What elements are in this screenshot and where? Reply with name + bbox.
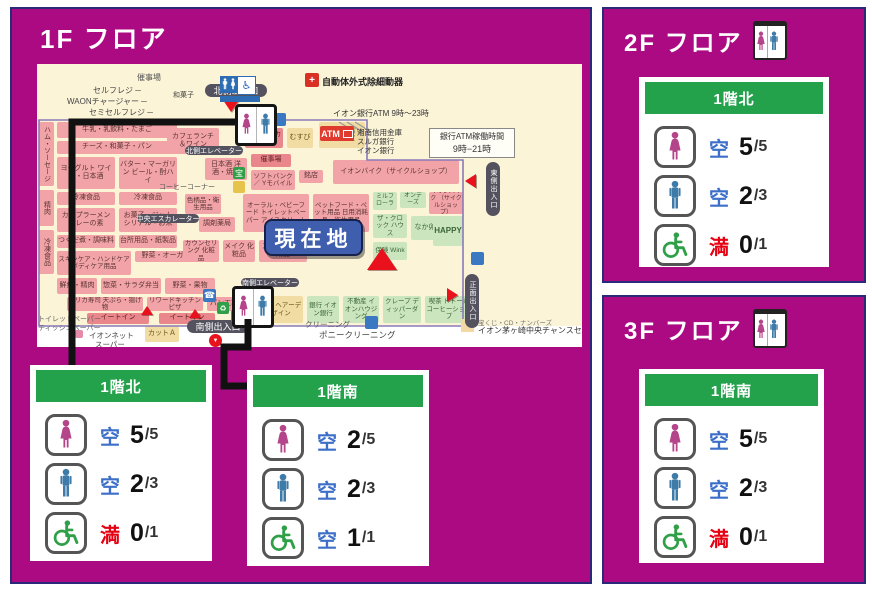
floor-1f-title-text: 1F フロア <box>40 19 168 56</box>
lottery-icon: 宝 <box>233 167 245 179</box>
vacancy-status: 空 <box>317 524 338 553</box>
map-store-block: つくだ煮・調味料 <box>57 235 115 248</box>
vacant-count: 2 <box>347 475 361 504</box>
vacancy-status: 満 <box>709 231 730 260</box>
total-count: /5 <box>754 430 767 448</box>
toilet-status-row: 空2/3 <box>654 466 824 510</box>
total-count: /5 <box>754 138 767 156</box>
male-icon <box>262 468 304 510</box>
female-icon <box>654 126 696 168</box>
map-label: セミセルフレジ ─ <box>89 107 153 118</box>
toilet-sign-icon <box>753 21 787 60</box>
map-store-block: カップラーメン カレーの素 <box>57 208 115 232</box>
total-count: /1 <box>145 524 158 542</box>
map-label: 和菓子 <box>173 90 194 100</box>
map-label: セルフレジ ─ <box>93 85 141 96</box>
toilet-sign-icon <box>753 309 787 348</box>
map-store-block: 精肉 <box>39 190 54 226</box>
floor-3f-title-text: 3F フロア <box>624 311 743 346</box>
toilet-status-row: 空1/1 <box>262 516 429 560</box>
map-store-block: チーズ・和菓子・パン <box>57 141 177 154</box>
map-store-block: カットＡ <box>145 326 179 342</box>
floor-3f-title: 3F フロア <box>624 309 787 348</box>
direction-marker-icon <box>447 288 458 302</box>
map-label: スーパー <box>95 339 125 347</box>
toilet-status-row: 空5/5 <box>654 417 824 461</box>
atm-hours-line2: 9時−21時 <box>453 142 491 155</box>
female-icon <box>654 418 696 460</box>
map-store-block: デリカ寿司 天ぷら・揚げ物 <box>67 297 143 311</box>
aed-icon: + <box>305 73 319 87</box>
kiosk-screen: 1F フロア ハム・ソーセージ精肉冷凍食品牛乳・乳飲料・たまごチーズ・和菓子・パ… <box>0 0 872 591</box>
map-store-block: 台所用品・紙製品 <box>119 235 177 248</box>
toilet-status-row: 空2/3 <box>262 467 429 511</box>
total-count: /3 <box>145 475 158 493</box>
male-icon <box>654 467 696 509</box>
card-header: 1階北 <box>645 82 823 114</box>
map-location-pill: 北側エレベーター <box>185 146 243 155</box>
vacancy-status: 空 <box>100 421 121 450</box>
male-icon <box>45 463 87 505</box>
wheelchair-icon <box>45 512 87 554</box>
floor-map: ハム・ソーセージ精肉冷凍食品牛乳・乳飲料・たまごチーズ・和菓子・パンヨーグルト … <box>37 64 582 347</box>
vacant-count: 2 <box>130 470 144 499</box>
card-rows: 空5/5空2/3満0/1 <box>30 402 212 555</box>
male-icon <box>654 175 696 217</box>
direction-marker-icon <box>189 309 201 318</box>
total-count: /1 <box>362 529 375 547</box>
status-card-1f-south: 1階南空2/5空2/3空1/1 <box>247 370 429 566</box>
map-store-block: ザ・クロック ハウス <box>373 214 407 238</box>
vacancy-status: 空 <box>709 182 730 211</box>
map-label: 自動体外式除細動器 <box>322 75 403 88</box>
floor-3f-panel: 3F フロア 1階南空5/5空2/3満0/1 <box>602 295 866 584</box>
map-label: 催事場 <box>137 72 161 83</box>
vacant-count: 5 <box>739 425 753 454</box>
female-icon <box>45 414 87 456</box>
atm-hours-box: 銀行ATM稼働時間9時−21時 <box>429 128 515 158</box>
wheelchair-icon <box>654 516 696 558</box>
male-icon <box>253 289 272 325</box>
floor-2f-title-text: 2F フロア <box>624 23 743 58</box>
vacancy-status: 空 <box>709 474 730 503</box>
map-store-block: ハム・ソーセージ <box>39 122 54 186</box>
map-label: WAONチャージャー ─ <box>67 96 147 107</box>
map-location-pill: 中央エスカレーター <box>137 214 199 223</box>
map-store-block: 催事場 <box>251 154 291 167</box>
accessible-toilet-sign: ♿ <box>220 76 260 102</box>
atm-icon: ATM <box>320 126 354 141</box>
direction-marker-icon <box>141 306 153 315</box>
status-card-1f-north: 1階北空5/5空2/3満0/1 <box>30 365 212 561</box>
map-store-block: 鮮魚・精肉 <box>57 278 97 294</box>
vacant-count: 2 <box>347 426 361 455</box>
vacancy-status: 空 <box>709 425 730 454</box>
floor-1f-title: 1F フロア <box>40 19 168 56</box>
vacant-count: 5 <box>739 133 753 162</box>
total-count: /1 <box>754 528 767 546</box>
card-rows: 空5/5空2/3満0/1 <box>639 406 824 559</box>
map-store-block: むすび <box>287 128 313 148</box>
wheelchair-sign-icon: ♿ <box>237 76 256 95</box>
toilet-status-row: 空2/3 <box>45 462 212 506</box>
total-count: /5 <box>362 431 375 449</box>
toilet-location-icon <box>235 104 277 146</box>
legend-line2: イオン茅ヶ崎中央チャンスセンター <box>478 325 582 336</box>
vacancy-status: 満 <box>709 523 730 552</box>
male-icon <box>767 26 780 58</box>
bicycle-icon <box>471 252 484 265</box>
toilet-status-row: 満0/1 <box>654 515 824 559</box>
floor-1f-panel: 1F フロア ハム・ソーセージ精肉冷凍食品牛乳・乳飲料・たまごチーズ・和菓子・パ… <box>10 7 592 584</box>
direction-marker-icon <box>367 248 397 270</box>
female-icon <box>755 314 767 346</box>
map-label: ポニークリーニング <box>319 329 396 341</box>
status-card-3f: 1階南空5/5空2/3満0/1 <box>639 369 824 563</box>
map-store-block: 色柄品・衛生用品 <box>185 194 221 214</box>
map-store-block: ミルフローラ <box>373 192 397 210</box>
toilet-status-row: 空5/5 <box>45 413 212 457</box>
map-store-block: 調剤薬局 <box>199 217 235 232</box>
card-header: 1階北 <box>36 370 206 402</box>
total-count: /3 <box>754 479 767 497</box>
total-count: /5 <box>145 426 158 444</box>
card-rows: 空2/5空2/3空1/1 <box>247 407 429 560</box>
vacant-count: 2 <box>739 474 753 503</box>
map-store-block: 牛乳・乳飲料・たまご <box>57 122 177 138</box>
map-store-block: クレープ ディッパーダン <box>383 296 421 323</box>
recycle-icon: ♻ <box>217 302 229 314</box>
entrance-pin-icon: ▼ <box>209 334 222 347</box>
vacant-count: 5 <box>130 421 144 450</box>
wheelchair-icon <box>262 517 304 559</box>
map-store-block: 惣菜・サラダ弁当 <box>101 278 161 294</box>
toilet-sign-icon <box>753 309 787 348</box>
toilet-status-row: 空5/5 <box>654 125 829 169</box>
toilet-status-row: 満0/1 <box>654 223 829 267</box>
card-rows: 空5/5空2/3満0/1 <box>639 114 829 267</box>
map-location-pill: 東側出入口 <box>486 162 500 216</box>
map-store-block: ソフトバンク／ Yモバイル <box>251 170 295 190</box>
toilet-location-icon <box>232 286 274 328</box>
map-location-pill: 正面出入口 <box>465 274 479 328</box>
card-header: 1階南 <box>645 374 818 406</box>
map-store-block: HAPPY <box>433 216 463 246</box>
map-store-block: オンデーズ <box>400 192 426 208</box>
toilet-status-row: 空2/5 <box>262 418 429 462</box>
female-icon <box>235 289 253 325</box>
map-store-block: イオンバイク（サイクルショップ） <box>333 160 459 184</box>
floor-2f-title: 2F フロア <box>624 21 787 60</box>
net-super-icon <box>75 330 83 338</box>
map-store-block: カウンセリング 化粧品 <box>183 240 219 262</box>
map-store-block: 冷凍食品 <box>57 192 115 205</box>
map-store-block: 銘店 <box>299 170 323 183</box>
map-store-block: 冷凍食品 <box>39 230 54 274</box>
toilet-status-row: 空2/3 <box>654 174 829 218</box>
floor-2f-panel: 2F フロア 1階北空5/5空2/3満0/1 <box>602 7 866 283</box>
bicycle-icon <box>365 316 378 329</box>
status-card-2f: 1階北空5/5空2/3満0/1 <box>639 77 829 267</box>
map-label: イオン銀行 <box>357 145 395 156</box>
male-icon <box>256 107 275 143</box>
male-icon <box>767 314 780 346</box>
map-store-block: 冷凍食品 <box>119 192 177 205</box>
vacant-count: 0 <box>739 231 753 260</box>
vacant-count: 2 <box>739 182 753 211</box>
map-store-block: イオンバイク （サイクルショップ） <box>429 192 463 214</box>
toilet-sign-caption <box>220 96 260 102</box>
total-count: /3 <box>362 480 375 498</box>
map-store-block: メイク 化粧品 <box>223 240 255 262</box>
map-store-block: ヨーグルト ワイン・日本酒 <box>57 157 115 189</box>
map-store-block: スキンケア・ハンドケア ボディケア用品 <box>57 251 131 275</box>
direction-marker-icon <box>465 174 476 188</box>
toilet-sign-icon <box>753 21 787 60</box>
service-icon <box>233 181 245 193</box>
vacant-count: 1 <box>347 524 361 553</box>
total-count: /1 <box>754 236 767 254</box>
wheelchair-icon <box>654 224 696 266</box>
current-location-badge: 現在地 <box>264 219 363 256</box>
map-label: コーヒーコーナー <box>159 182 215 192</box>
toilet-sign-icon <box>220 76 237 93</box>
female-icon <box>238 107 256 143</box>
map-label: イオン銀行ATM 9時～23時 <box>333 108 429 119</box>
toilet-status-row: 満0/1 <box>45 511 212 555</box>
vacancy-status: 空 <box>100 470 121 499</box>
vacancy-status: 空 <box>317 475 338 504</box>
phone-icon: ☎ <box>203 289 216 302</box>
vacancy-status: 空 <box>317 426 338 455</box>
female-icon <box>262 419 304 461</box>
card-header: 1階南 <box>253 375 423 407</box>
vacant-count: 0 <box>739 523 753 552</box>
vacancy-status: 空 <box>709 133 730 162</box>
atm-hours-line1: 銀行ATM稼働時間 <box>440 131 504 142</box>
vacant-count: 0 <box>130 519 144 548</box>
vacancy-status: 満 <box>100 519 121 548</box>
female-icon <box>755 26 767 58</box>
total-count: /3 <box>754 187 767 205</box>
